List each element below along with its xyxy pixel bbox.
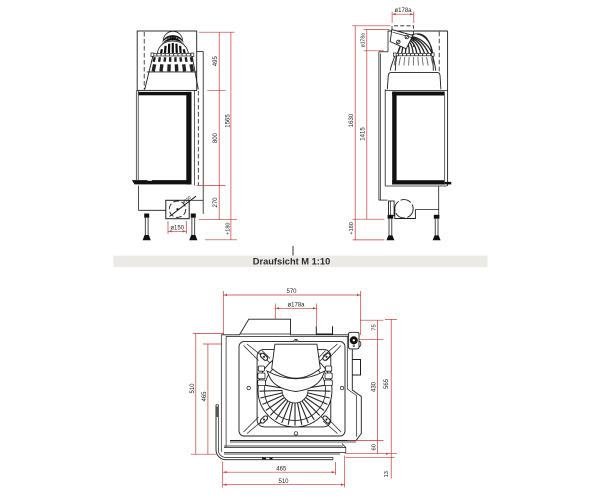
svg-text:570: 570 [286, 289, 297, 295]
svg-text:ø178a: ø178a [394, 8, 412, 14]
svg-text:430: 430 [372, 381, 378, 392]
svg-text:565: 565 [384, 378, 390, 389]
svg-text:495: 495 [213, 56, 219, 67]
svg-text:+180: +180 [225, 223, 231, 235]
svg-text:ø178a: ø178a [287, 302, 305, 308]
svg-text:ø178a: ø178a [361, 33, 367, 47]
svg-text:+180: +180 [349, 222, 355, 234]
svg-text:465: 465 [276, 466, 287, 472]
svg-text:ø150: ø150 [170, 225, 184, 231]
svg-text:Draufsicht M 1:10: Draufsicht M 1:10 [253, 257, 331, 267]
svg-text:1565: 1565 [225, 114, 231, 128]
svg-text:510: 510 [278, 479, 289, 485]
svg-text:1415: 1415 [360, 127, 366, 141]
svg-text:75: 75 [372, 324, 378, 330]
svg-text:510: 510 [190, 383, 196, 394]
svg-text:465: 465 [202, 391, 208, 402]
svg-text:270: 270 [213, 197, 219, 208]
svg-text:13: 13 [384, 471, 390, 477]
svg-text:60: 60 [372, 444, 378, 450]
svg-text:800: 800 [213, 132, 219, 143]
svg-text:1630: 1630 [349, 113, 355, 127]
